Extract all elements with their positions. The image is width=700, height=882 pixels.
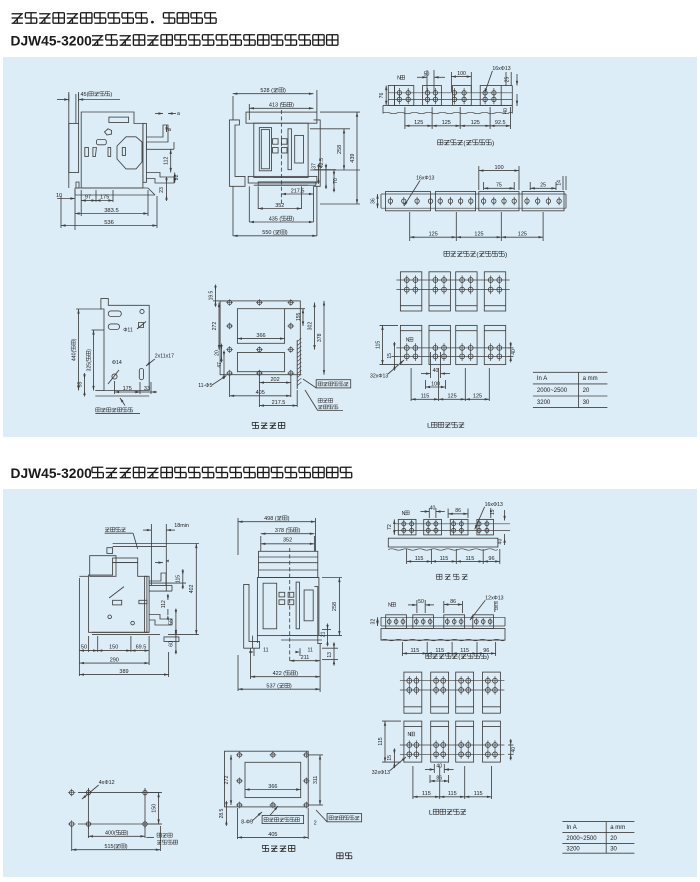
svg-text:30: 30 xyxy=(583,400,590,406)
svg-text:): ) xyxy=(296,671,298,677)
svg-text:): ) xyxy=(286,230,288,236)
svg-text:536: 536 xyxy=(104,220,114,226)
svg-text:a: a xyxy=(168,127,171,133)
svg-text:125: 125 xyxy=(429,232,438,238)
svg-text:): ) xyxy=(505,251,507,258)
svg-text:2000~2500: 2000~2500 xyxy=(566,836,597,842)
svg-text:37: 37 xyxy=(312,163,318,169)
svg-text:115: 115 xyxy=(421,394,430,400)
svg-text:20: 20 xyxy=(610,836,617,842)
svg-text:): ) xyxy=(127,831,129,837)
svg-text:a mm: a mm xyxy=(583,376,598,382)
svg-text:12xΦ13: 12xΦ13 xyxy=(485,596,503,602)
svg-text:N: N xyxy=(408,732,412,738)
svg-text:13: 13 xyxy=(327,652,333,658)
svg-text:33: 33 xyxy=(144,386,150,392)
svg-text:): ) xyxy=(110,92,112,98)
svg-text:115: 115 xyxy=(440,556,449,562)
svg-text:18.5: 18.5 xyxy=(494,601,500,611)
svg-text:86: 86 xyxy=(450,599,456,605)
svg-text:55: 55 xyxy=(77,382,83,388)
svg-text:515(: 515( xyxy=(105,844,116,850)
svg-text:125: 125 xyxy=(473,394,482,400)
svg-text:402: 402 xyxy=(189,585,195,594)
svg-text:439: 439 xyxy=(350,154,356,163)
svg-text:20: 20 xyxy=(583,388,590,394)
svg-text:15: 15 xyxy=(490,509,496,515)
svg-text:N: N xyxy=(406,337,410,343)
svg-text:70: 70 xyxy=(333,178,339,184)
svg-text:55: 55 xyxy=(169,619,175,625)
svg-text:2: 2 xyxy=(314,821,317,827)
svg-text:): ) xyxy=(284,88,286,94)
svg-text:21: 21 xyxy=(320,631,326,637)
svg-text:115: 115 xyxy=(415,556,424,562)
svg-text:8-Φ5: 8-Φ5 xyxy=(241,820,253,826)
svg-text:50: 50 xyxy=(418,599,424,605)
svg-text:L: L xyxy=(427,423,431,430)
svg-text:272: 272 xyxy=(212,322,218,331)
svg-text:16xΦ13: 16xΦ13 xyxy=(485,502,503,508)
svg-text:2000~2500: 2000~2500 xyxy=(537,388,568,394)
svg-text:383.5: 383.5 xyxy=(104,208,119,214)
svg-text:72: 72 xyxy=(387,524,393,530)
svg-text:290: 290 xyxy=(110,658,119,664)
svg-text:): ) xyxy=(126,844,128,850)
svg-text:18min: 18min xyxy=(174,523,189,529)
svg-text:422 (: 422 ( xyxy=(273,671,286,677)
svg-text:40: 40 xyxy=(430,506,436,512)
svg-text:25: 25 xyxy=(540,183,546,189)
svg-text:272: 272 xyxy=(224,776,230,785)
svg-text:311: 311 xyxy=(313,776,319,784)
svg-text:125: 125 xyxy=(518,232,527,238)
svg-text:76: 76 xyxy=(379,93,385,99)
svg-text:60: 60 xyxy=(169,641,175,647)
svg-text:36: 36 xyxy=(371,198,377,204)
svg-text:Φ11: Φ11 xyxy=(123,327,133,333)
svg-text:3200: 3200 xyxy=(566,846,580,852)
svg-text:115: 115 xyxy=(460,648,469,654)
svg-text:14: 14 xyxy=(557,180,563,186)
svg-text:): ) xyxy=(492,140,494,147)
svg-text:325(: 325( xyxy=(86,361,92,372)
svg-text:96: 96 xyxy=(488,556,494,562)
svg-text:15: 15 xyxy=(387,353,393,359)
svg-text:32xΦ13: 32xΦ13 xyxy=(370,373,388,379)
svg-text:32xΦ13: 32xΦ13 xyxy=(372,770,390,776)
svg-text:352: 352 xyxy=(275,203,284,209)
svg-text:115: 115 xyxy=(448,791,457,797)
svg-text:92: 92 xyxy=(174,175,180,181)
svg-text:23: 23 xyxy=(159,187,165,193)
svg-text:125: 125 xyxy=(442,120,451,126)
svg-text:440(: 440( xyxy=(71,350,77,361)
svg-text:413 (: 413 ( xyxy=(269,103,282,109)
svg-text:11: 11 xyxy=(263,648,268,654)
svg-text:86: 86 xyxy=(455,508,461,514)
svg-text:16xΦ13: 16xΦ13 xyxy=(416,175,434,181)
svg-text:19.5: 19.5 xyxy=(209,290,215,300)
svg-text:11: 11 xyxy=(308,648,313,654)
svg-text:217.5: 217.5 xyxy=(291,188,305,194)
svg-text:): ) xyxy=(487,654,489,661)
svg-text:3200: 3200 xyxy=(537,400,551,406)
svg-text:125: 125 xyxy=(448,394,457,400)
svg-text:45(: 45( xyxy=(81,92,89,98)
svg-text:): ) xyxy=(288,516,290,522)
svg-text:115: 115 xyxy=(422,791,431,797)
svg-text:115: 115 xyxy=(435,648,444,654)
svg-text:40: 40 xyxy=(511,747,517,753)
svg-text:528 (: 528 ( xyxy=(260,88,273,94)
svg-text:112: 112 xyxy=(161,600,167,608)
svg-text:435 (: 435 ( xyxy=(269,216,282,222)
svg-text:211: 211 xyxy=(301,655,310,661)
svg-text:DJW45-3200: DJW45-3200 xyxy=(11,34,93,49)
svg-text:): ) xyxy=(290,684,292,690)
svg-text:In A: In A xyxy=(566,825,576,831)
svg-text:): ) xyxy=(299,528,301,534)
svg-text:150: 150 xyxy=(151,804,157,813)
svg-text:115: 115 xyxy=(474,791,483,797)
svg-text:a: a xyxy=(165,559,171,562)
svg-text:In A: In A xyxy=(537,376,547,382)
svg-text:405: 405 xyxy=(256,390,265,396)
svg-text:50: 50 xyxy=(424,72,430,78)
svg-text:): ) xyxy=(292,216,294,222)
svg-text:115: 115 xyxy=(376,341,382,349)
svg-text:258: 258 xyxy=(332,602,338,611)
svg-text:202: 202 xyxy=(271,377,280,383)
svg-text:a mm: a mm xyxy=(610,825,625,831)
svg-text:150: 150 xyxy=(109,645,118,651)
svg-text:366: 366 xyxy=(268,784,277,790)
svg-text:Φ14: Φ14 xyxy=(112,360,122,366)
svg-text:47: 47 xyxy=(217,362,223,368)
svg-text:400(: 400( xyxy=(105,831,116,837)
svg-text:L: L xyxy=(429,810,433,817)
svg-text:97: 97 xyxy=(85,195,91,201)
svg-text:175: 175 xyxy=(100,195,109,201)
svg-text:115: 115 xyxy=(411,648,420,654)
svg-text:): ) xyxy=(86,349,92,351)
svg-text:112: 112 xyxy=(164,157,170,165)
svg-text:69.5: 69.5 xyxy=(136,645,147,651)
svg-text:378 (: 378 ( xyxy=(275,528,288,534)
svg-text:550 (: 550 ( xyxy=(262,230,275,236)
svg-text:DJW45-3200: DJW45-3200 xyxy=(11,466,93,481)
svg-text:100: 100 xyxy=(495,165,504,171)
svg-text:15: 15 xyxy=(387,755,393,761)
svg-text:40: 40 xyxy=(433,368,439,374)
svg-text:155: 155 xyxy=(296,312,302,321)
svg-text:28.5: 28.5 xyxy=(219,808,225,818)
svg-text:11-Φ5: 11-Φ5 xyxy=(198,383,212,389)
svg-text:175: 175 xyxy=(123,386,132,392)
svg-text:40: 40 xyxy=(503,108,509,114)
svg-text:): ) xyxy=(71,338,77,340)
svg-text:115: 115 xyxy=(466,556,475,562)
svg-text:40: 40 xyxy=(498,539,504,545)
svg-text:a: a xyxy=(177,111,180,117)
svg-text:25: 25 xyxy=(505,77,511,83)
svg-text:115: 115 xyxy=(378,737,384,745)
svg-text:16xΦ13: 16xΦ13 xyxy=(492,66,510,72)
svg-text:125: 125 xyxy=(414,120,423,126)
svg-text:): ) xyxy=(292,103,294,109)
svg-text:20: 20 xyxy=(215,350,221,356)
svg-text:498 (: 498 ( xyxy=(264,516,277,522)
svg-text:4xΦ12: 4xΦ12 xyxy=(99,780,115,786)
svg-text:32: 32 xyxy=(371,619,377,625)
svg-text:125: 125 xyxy=(474,232,483,238)
svg-text:42.5: 42.5 xyxy=(319,158,325,168)
svg-text:302: 302 xyxy=(308,322,314,331)
svg-text:258: 258 xyxy=(337,145,343,154)
svg-text:100: 100 xyxy=(457,71,466,77)
svg-text:75: 75 xyxy=(496,183,502,189)
svg-text:366: 366 xyxy=(256,333,265,339)
svg-text:217.5: 217.5 xyxy=(272,400,286,406)
svg-text:405: 405 xyxy=(268,832,277,838)
svg-text:30: 30 xyxy=(610,846,617,852)
svg-text:115: 115 xyxy=(176,575,182,583)
svg-text:125: 125 xyxy=(471,120,480,126)
svg-text:389: 389 xyxy=(119,669,128,675)
svg-text:2x11x17: 2x11x17 xyxy=(155,354,174,360)
svg-text:352: 352 xyxy=(283,538,292,544)
svg-text:50: 50 xyxy=(81,645,87,651)
svg-text:40: 40 xyxy=(511,349,517,355)
svg-text:378: 378 xyxy=(317,333,323,342)
svg-text:92.5: 92.5 xyxy=(495,120,506,126)
svg-text:537 (: 537 ( xyxy=(266,684,279,690)
